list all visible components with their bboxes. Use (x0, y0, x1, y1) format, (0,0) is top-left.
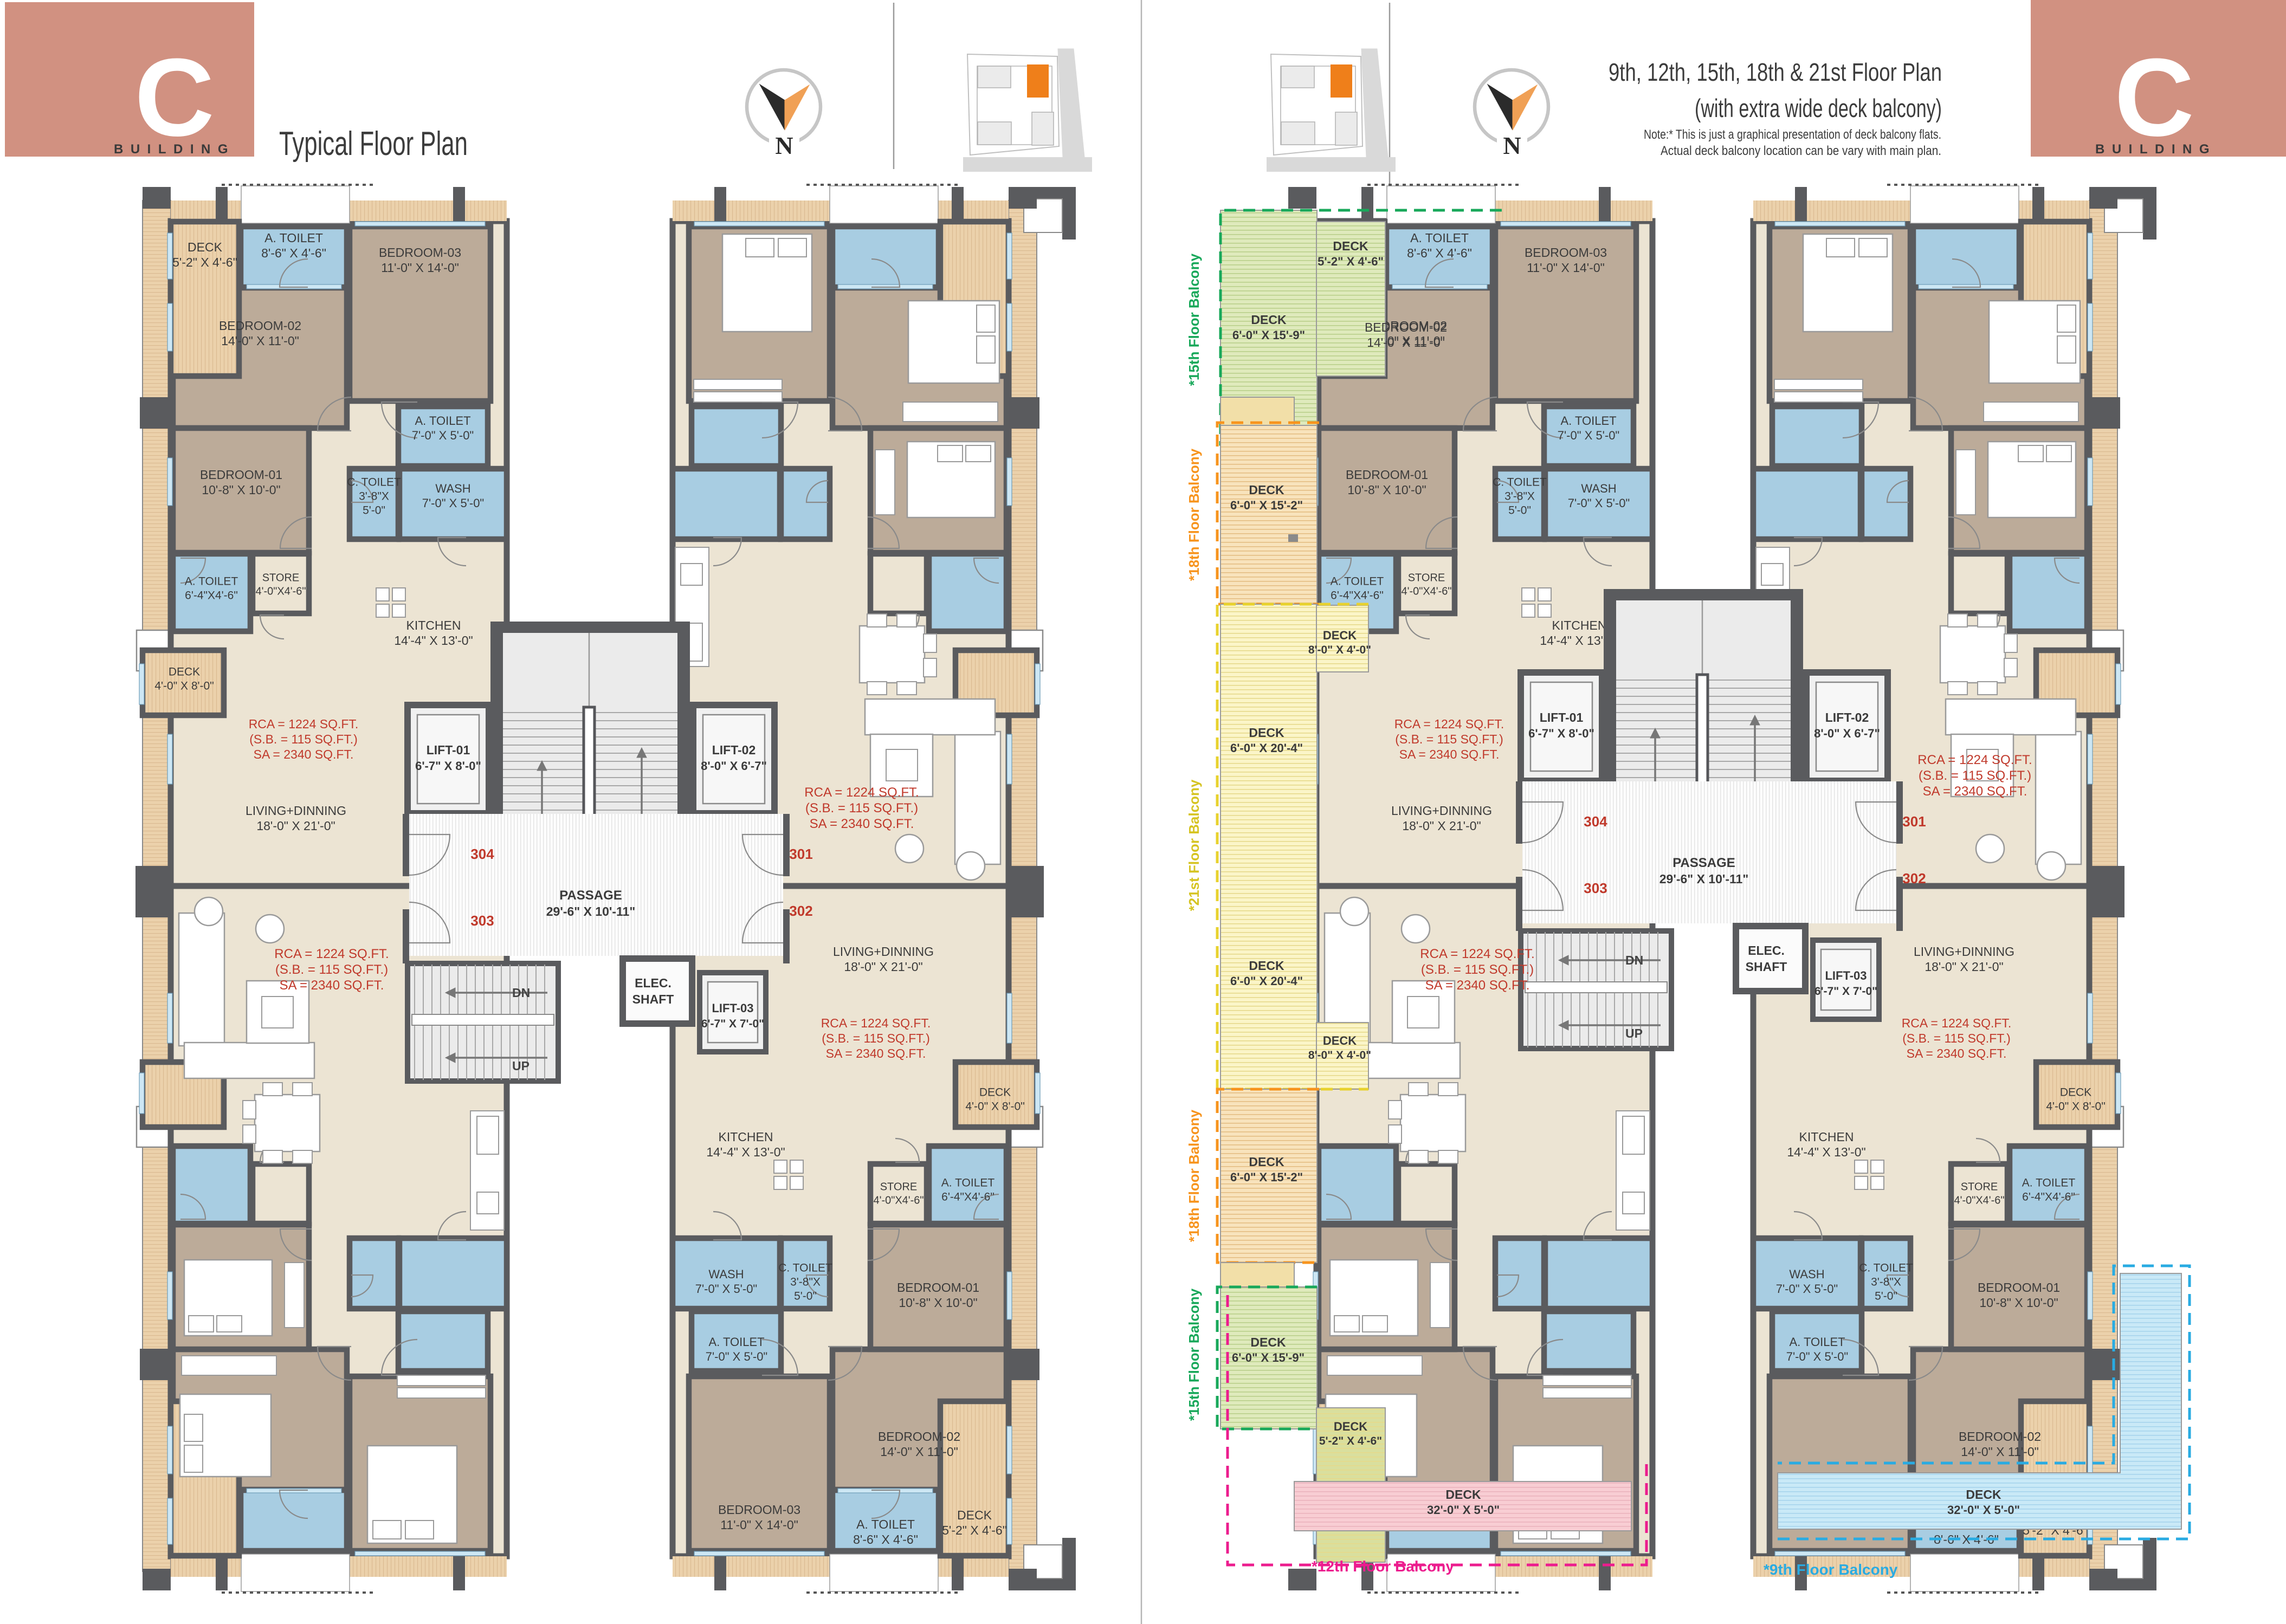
svg-text:6'-4"X4'-6": 6'-4"X4'-6" (185, 589, 238, 601)
svg-text:DECK: DECK (1249, 483, 1284, 497)
svg-text:ELEC.: ELEC. (635, 976, 671, 990)
svg-text:A. TOILET: A. TOILET (941, 1176, 995, 1189)
svg-text:(S.B. = 115 SQ.FT.): (S.B. = 115 SQ.FT.) (822, 1031, 930, 1045)
svg-text:6'-0" X 15'-9": 6'-0" X 15'-9" (1232, 328, 1305, 342)
svg-text:6'-0" X 20'-4": 6'-0" X 20'-4" (1230, 974, 1303, 988)
svg-text:LIFT-03: LIFT-03 (712, 1001, 753, 1015)
svg-text:DECK: DECK (1251, 313, 1287, 327)
svg-text:BEDROOM-02: BEDROOM-02 (1959, 1429, 2041, 1444)
svg-text:RCA = 1224 SQ.FT.: RCA = 1224 SQ.FT. (249, 717, 359, 731)
svg-text:BEDROOM-01: BEDROOM-01 (1978, 1280, 2060, 1295)
svg-text:C. TOILET: C. TOILET (1859, 1261, 1913, 1274)
svg-text:SHAFT: SHAFT (1746, 960, 1787, 974)
svg-text:4'-0" X 8'-0": 4'-0" X 8'-0" (154, 680, 214, 692)
svg-text:DECK: DECK (1445, 1487, 1481, 1502)
svg-text:304: 304 (470, 846, 494, 862)
svg-text:7'-0" X 5'-0": 7'-0" X 5'-0" (1568, 496, 1630, 510)
svg-text:RCA = 1224 SQ.FT.: RCA = 1224 SQ.FT. (1420, 947, 1534, 961)
svg-text:5'-0": 5'-0" (1508, 504, 1531, 516)
svg-text:4'-0" X 8'-0": 4'-0" X 8'-0" (2046, 1100, 2105, 1112)
svg-text:6'-4"X4'-6": 6'-4"X4'-6" (2022, 1190, 2075, 1203)
svg-text:N: N (1503, 132, 1521, 159)
svg-text:6'-0" X 15'-2": 6'-0" X 15'-2" (1230, 499, 1303, 512)
svg-text:304: 304 (1584, 813, 1607, 830)
svg-text:7'-0" X 5'-0": 7'-0" X 5'-0" (706, 1350, 768, 1363)
svg-text:STORE: STORE (1961, 1181, 1998, 1193)
svg-text:14'-4" X 13'-0": 14'-4" X 13'-0" (394, 633, 473, 648)
svg-text:(S.B. = 115 SQ.FT.): (S.B. = 115 SQ.FT.) (249, 732, 358, 746)
svg-text:RCA = 1224 SQ.FT.: RCA = 1224 SQ.FT. (1902, 1016, 2012, 1030)
svg-text:LIFT-02: LIFT-02 (1825, 710, 1869, 724)
svg-text:DN: DN (1625, 953, 1643, 967)
svg-text:PASSAGE: PASSAGE (559, 888, 622, 903)
svg-text:RCA = 1224 SQ.FT.: RCA = 1224 SQ.FT. (821, 1016, 931, 1030)
svg-text:8'-0" X 6'-7": 8'-0" X 6'-7" (1814, 727, 1880, 740)
svg-text:BEDROOM-02: BEDROOM-02 (1365, 320, 1447, 334)
svg-text:DECK: DECK (1966, 1487, 2001, 1502)
svg-text:18'-0" X 21'-0": 18'-0" X 21'-0" (1402, 819, 1481, 833)
svg-text:18'-0" X 21'-0": 18'-0" X 21'-0" (256, 819, 335, 833)
svg-text:*18th Floor Balcony: *18th Floor Balcony (1186, 448, 1202, 581)
svg-text:RCA = 1224 SQ.FT.: RCA = 1224 SQ.FT. (274, 947, 389, 961)
svg-text:A. TOILET: A. TOILET (1560, 414, 1616, 428)
svg-text:6'-7" X 7'-0": 6'-7" X 7'-0" (701, 1018, 764, 1030)
svg-text:8'-6" X 4'-6": 8'-6" X 4'-6" (261, 246, 326, 260)
svg-text:UP: UP (1625, 1026, 1643, 1040)
svg-text:DN: DN (512, 986, 530, 1000)
svg-text:LIFT-03: LIFT-03 (1825, 969, 1867, 982)
svg-text:9th, 12th, 15th, 18th & 21st: 9th, 12th, 15th, 18th & 21st Floor Plan (1609, 58, 1942, 86)
svg-text:6'-7" X 7'-0": 6'-7" X 7'-0" (1814, 985, 1877, 998)
svg-text:7'-0" X 5'-0": 7'-0" X 5'-0" (1786, 1350, 1849, 1363)
svg-text:Actual deck balcony location c: Actual deck balcony location can be vary… (1661, 144, 1941, 158)
svg-text:DECK: DECK (1249, 726, 1284, 740)
svg-text:Note:* This is just a graphica: Note:* This is just a graphical presenta… (1644, 127, 1941, 142)
svg-text:11'-0" X 14'-0": 11'-0" X 14'-0" (1527, 261, 1605, 275)
svg-text:6'-0" X 20'-4": 6'-0" X 20'-4" (1230, 741, 1303, 755)
svg-text:BEDROOM-01: BEDROOM-01 (897, 1280, 979, 1295)
svg-text:10'-8" X 10'-0": 10'-8" X 10'-0" (1347, 483, 1426, 497)
svg-text:DECK: DECK (1333, 239, 1368, 253)
svg-text:302: 302 (789, 903, 812, 919)
svg-text:(S.B. = 115 SQ.FT.): (S.B. = 115 SQ.FT.) (1902, 1031, 2011, 1045)
svg-text:5'-2" X 4'-6": 5'-2" X 4'-6" (942, 1523, 1007, 1537)
svg-text:6'-4"X4'-6": 6'-4"X4'-6" (941, 1190, 995, 1203)
svg-text:LIVING+DINNING: LIVING+DINNING (833, 944, 934, 959)
svg-text:WASH: WASH (435, 482, 470, 495)
svg-text:A. TOILET: A. TOILET (2022, 1176, 2076, 1189)
svg-text:3'-8"X: 3'-8"X (790, 1276, 821, 1288)
svg-text:7'-0" X 5'-0": 7'-0" X 5'-0" (412, 429, 474, 442)
svg-text:6'-7" X 8'-0": 6'-7" X 8'-0" (415, 759, 481, 773)
svg-text:301: 301 (1902, 813, 1926, 830)
svg-text:5'-2" X 4'-6": 5'-2" X 4'-6" (172, 255, 237, 269)
svg-text:10'-8" X 10'-0": 10'-8" X 10'-0" (899, 1296, 977, 1310)
svg-text:STORE: STORE (1408, 572, 1445, 584)
svg-text:5'-2" X 4'-6": 5'-2" X 4'-6" (1319, 1435, 1382, 1447)
svg-text:BEDROOM-03: BEDROOM-03 (379, 245, 461, 260)
svg-text:N: N (775, 132, 793, 159)
svg-text:C: C (2114, 36, 2194, 159)
svg-text:A. TOILET: A. TOILET (1789, 1335, 1845, 1349)
svg-text:A. TOILET: A. TOILET (264, 231, 323, 245)
svg-text:SA = 2340 SQ.FT.: SA = 2340 SQ.FT. (280, 978, 384, 993)
svg-text:*15th Floor Balcony: *15th Floor Balcony (1186, 253, 1202, 386)
svg-text:7'-0" X 5'-0": 7'-0" X 5'-0" (1558, 429, 1620, 442)
svg-text:WASH: WASH (708, 1267, 744, 1281)
svg-text:SHAFT: SHAFT (632, 992, 674, 1006)
svg-text:4'-0" X 8'-0": 4'-0" X 8'-0" (965, 1100, 1024, 1112)
svg-text:LIVING+DINNING: LIVING+DINNING (1914, 944, 2014, 959)
svg-text:14'-0" X 11'-0": 14'-0" X 11'-0" (880, 1445, 958, 1459)
svg-text:RCA = 1224 SQ.FT.: RCA = 1224 SQ.FT. (1394, 717, 1504, 731)
svg-text:8'-6" X 4'-6": 8'-6" X 4'-6" (853, 1532, 918, 1547)
svg-text:5'-0": 5'-0" (794, 1290, 817, 1302)
svg-text:DECK: DECK (1323, 629, 1357, 642)
svg-text:WASH: WASH (1789, 1267, 1824, 1281)
svg-text:STORE: STORE (880, 1181, 918, 1193)
svg-text:C. TOILET: C. TOILET (347, 476, 401, 488)
svg-text:DECK: DECK (1250, 1335, 1286, 1349)
svg-text:*21st Floor Balcony: *21st Floor Balcony (1186, 779, 1202, 911)
svg-text:A. TOILET: A. TOILET (415, 414, 470, 428)
svg-text:3'-8"X: 3'-8"X (1871, 1276, 1901, 1288)
svg-text:PASSAGE: PASSAGE (1672, 856, 1735, 870)
svg-text:6'-7" X 8'-0": 6'-7" X 8'-0" (1528, 727, 1594, 740)
svg-text:14'-0" X 11'-0": 14'-0" X 11'-0" (1367, 335, 1445, 350)
svg-text:UP: UP (512, 1059, 529, 1073)
svg-text:18'-0" X 21'-0": 18'-0" X 21'-0" (1925, 960, 2003, 974)
svg-text:RCA = 1224 SQ.FT.: RCA = 1224 SQ.FT. (1917, 753, 2032, 767)
svg-text:WASH: WASH (1581, 482, 1616, 495)
svg-text:A. TOILET: A. TOILET (856, 1517, 915, 1531)
svg-text:4'-0"X4'-6": 4'-0"X4'-6" (1954, 1195, 2005, 1207)
svg-text:A. TOILET: A. TOILET (708, 1335, 764, 1349)
svg-text:RCA = 1224 SQ.FT.: RCA = 1224 SQ.FT. (804, 785, 919, 800)
svg-text:8'-0" X 4'-0": 8'-0" X 4'-0" (1308, 644, 1371, 656)
svg-text:SA = 2340 SQ.FT.: SA = 2340 SQ.FT. (1907, 1046, 2007, 1060)
svg-text:303: 303 (470, 913, 494, 929)
svg-text:*12th Floor Balcony: *12th Floor Balcony (1312, 1558, 1454, 1575)
svg-text:(S.B. = 115 SQ.FT.): (S.B. = 115 SQ.FT.) (1421, 962, 1534, 977)
svg-text:4'-0"X4'-6": 4'-0"X4'-6" (1402, 586, 1452, 598)
svg-text:7'-0" X 5'-0": 7'-0" X 5'-0" (422, 496, 485, 510)
svg-text:C. TOILET: C. TOILET (778, 1261, 832, 1274)
svg-text:8'-0" X 6'-7": 8'-0" X 6'-7" (701, 759, 767, 773)
svg-text:18'-0" X 21'-0": 18'-0" X 21'-0" (844, 960, 922, 974)
svg-text:BEDROOM-03: BEDROOM-03 (718, 1503, 800, 1517)
svg-text:7'-0" X 5'-0": 7'-0" X 5'-0" (1776, 1282, 1838, 1296)
svg-text:DECK: DECK (957, 1508, 992, 1522)
svg-text:11'-0" X 14'-0": 11'-0" X 14'-0" (381, 261, 459, 275)
svg-text:DECK: DECK (979, 1086, 1011, 1098)
svg-text:LIFT-02: LIFT-02 (712, 743, 756, 757)
svg-text:(S.B. = 115 SQ.FT.): (S.B. = 115 SQ.FT.) (1919, 768, 2031, 783)
svg-text:3'-8"X: 3'-8"X (359, 490, 389, 502)
svg-text:SA = 2340 SQ.FT.: SA = 2340 SQ.FT. (1399, 747, 1500, 761)
svg-text:14'-4" X 13'-0": 14'-4" X 13'-0" (706, 1145, 785, 1159)
svg-text:5'-0": 5'-0" (363, 504, 385, 516)
svg-text:SA = 2340 SQ.FT.: SA = 2340 SQ.FT. (254, 747, 354, 761)
svg-text:10'-8" X 10'-0": 10'-8" X 10'-0" (202, 483, 280, 497)
svg-text:3'-8"X: 3'-8"X (1504, 490, 1535, 502)
svg-text:SA = 2340 SQ.FT.: SA = 2340 SQ.FT. (1923, 784, 2027, 799)
svg-text:(with extra wide deck balcony): (with extra wide deck balcony) (1695, 94, 1942, 122)
svg-text:BEDROOM-02: BEDROOM-02 (878, 1429, 960, 1444)
svg-text:DECK: DECK (1249, 959, 1284, 973)
svg-text:14'-0" X 11'-0": 14'-0" X 11'-0" (221, 334, 299, 348)
svg-text:8'-0" X 4'-0": 8'-0" X 4'-0" (1308, 1049, 1371, 1062)
svg-text:A. TOILET: A. TOILET (185, 575, 238, 587)
svg-text:29'-6" X 10'-11": 29'-6" X 10'-11" (1659, 872, 1748, 886)
svg-text:6'-0" X 15'-9": 6'-0" X 15'-9" (1232, 1351, 1305, 1364)
svg-text:(S.B. = 115 SQ.FT.): (S.B. = 115 SQ.FT.) (275, 962, 388, 977)
svg-text:(S.B. = 115 SQ.FT.): (S.B. = 115 SQ.FT.) (1395, 732, 1503, 746)
svg-text:4'-0"X4'-6": 4'-0"X4'-6" (874, 1195, 924, 1207)
svg-text:32'-0" X 5'-0": 32'-0" X 5'-0" (1427, 1503, 1500, 1517)
svg-text:LIFT-01: LIFT-01 (427, 743, 470, 757)
svg-text:SA = 2340 SQ.FT.: SA = 2340 SQ.FT. (826, 1046, 926, 1060)
svg-text:DECK: DECK (188, 240, 223, 254)
svg-text:BEDROOM-03: BEDROOM-03 (1525, 245, 1607, 260)
svg-text:BUILDING: BUILDING (2095, 142, 2217, 157)
svg-text:BEDROOM-01: BEDROOM-01 (1346, 468, 1428, 482)
svg-text:6'-0" X 15'-2": 6'-0" X 15'-2" (1230, 1170, 1303, 1184)
svg-text:5'-0": 5'-0" (1875, 1290, 1897, 1302)
svg-text:6'-4"X4'-6": 6'-4"X4'-6" (1331, 589, 1384, 601)
svg-text:302: 302 (1902, 870, 1926, 887)
svg-text:SA = 2340 SQ.FT.: SA = 2340 SQ.FT. (1425, 978, 1530, 993)
svg-text:301: 301 (789, 846, 812, 862)
svg-text:DECK: DECK (1323, 1034, 1357, 1047)
svg-text:ELEC.: ELEC. (1748, 943, 1785, 957)
svg-text:LIFT-01: LIFT-01 (1540, 710, 1584, 724)
svg-text:KITCHEN: KITCHEN (1799, 1130, 1854, 1144)
svg-text:SA = 2340 SQ.FT.: SA = 2340 SQ.FT. (810, 817, 914, 831)
svg-text:DECK: DECK (1249, 1155, 1284, 1169)
svg-text:14'-0" X 11'-0": 14'-0" X 11'-0" (1961, 1445, 2039, 1459)
svg-text:C: C (134, 36, 214, 159)
svg-text:10'-8" X 10'-0": 10'-8" X 10'-0" (1979, 1296, 2058, 1310)
svg-text:KITCHEN: KITCHEN (406, 618, 461, 632)
svg-text:BUILDING: BUILDING (114, 142, 235, 157)
svg-text:STORE: STORE (262, 572, 300, 584)
svg-text:KITCHEN: KITCHEN (1552, 618, 1607, 632)
svg-text:BEDROOM-01: BEDROOM-01 (200, 468, 282, 482)
svg-text:32'-0" X 5'-0": 32'-0" X 5'-0" (1947, 1503, 2020, 1517)
svg-text:BEDROOM-02: BEDROOM-02 (219, 319, 301, 333)
svg-text:11'-0" X 14'-0": 11'-0" X 14'-0" (720, 1518, 798, 1532)
svg-text:*15th Floor Balcony: *15th Floor Balcony (1186, 1288, 1202, 1421)
svg-text:KITCHEN: KITCHEN (719, 1130, 773, 1144)
svg-text:303: 303 (1584, 880, 1607, 896)
svg-text:*9th Floor Balcony: *9th Floor Balcony (1764, 1561, 1898, 1578)
svg-text:DECK: DECK (169, 665, 200, 678)
svg-text:DECK: DECK (1334, 1420, 1367, 1433)
svg-text:5'-2" X 4'-6": 5'-2" X 4'-6" (1318, 255, 1384, 268)
svg-text:C. TOILET: C. TOILET (1493, 476, 1547, 488)
svg-text:A. TOILET: A. TOILET (1331, 575, 1384, 587)
svg-text:LIVING+DINNING: LIVING+DINNING (1391, 804, 1492, 818)
svg-text:Typical Floor Plan: Typical Floor Plan (279, 125, 468, 163)
svg-text:29'-6" X 10'-11": 29'-6" X 10'-11" (546, 904, 635, 918)
svg-text:(S.B. = 115 SQ.FT.): (S.B. = 115 SQ.FT.) (805, 801, 918, 816)
svg-text:7'-0" X 5'-0": 7'-0" X 5'-0" (695, 1282, 758, 1296)
svg-text:4'-0"X4'-6": 4'-0"X4'-6" (256, 586, 306, 598)
svg-text:14'-4" X 13'-0": 14'-4" X 13'-0" (1787, 1145, 1865, 1159)
svg-text:A. TOILET: A. TOILET (1410, 231, 1469, 245)
svg-text:LIVING+DINNING: LIVING+DINNING (246, 804, 346, 818)
svg-text:*18th Floor Balcony: *18th Floor Balcony (1186, 1109, 1202, 1242)
svg-text:DECK: DECK (2060, 1086, 2091, 1098)
svg-text:8'-6" X 4'-6": 8'-6" X 4'-6" (1407, 246, 1472, 260)
